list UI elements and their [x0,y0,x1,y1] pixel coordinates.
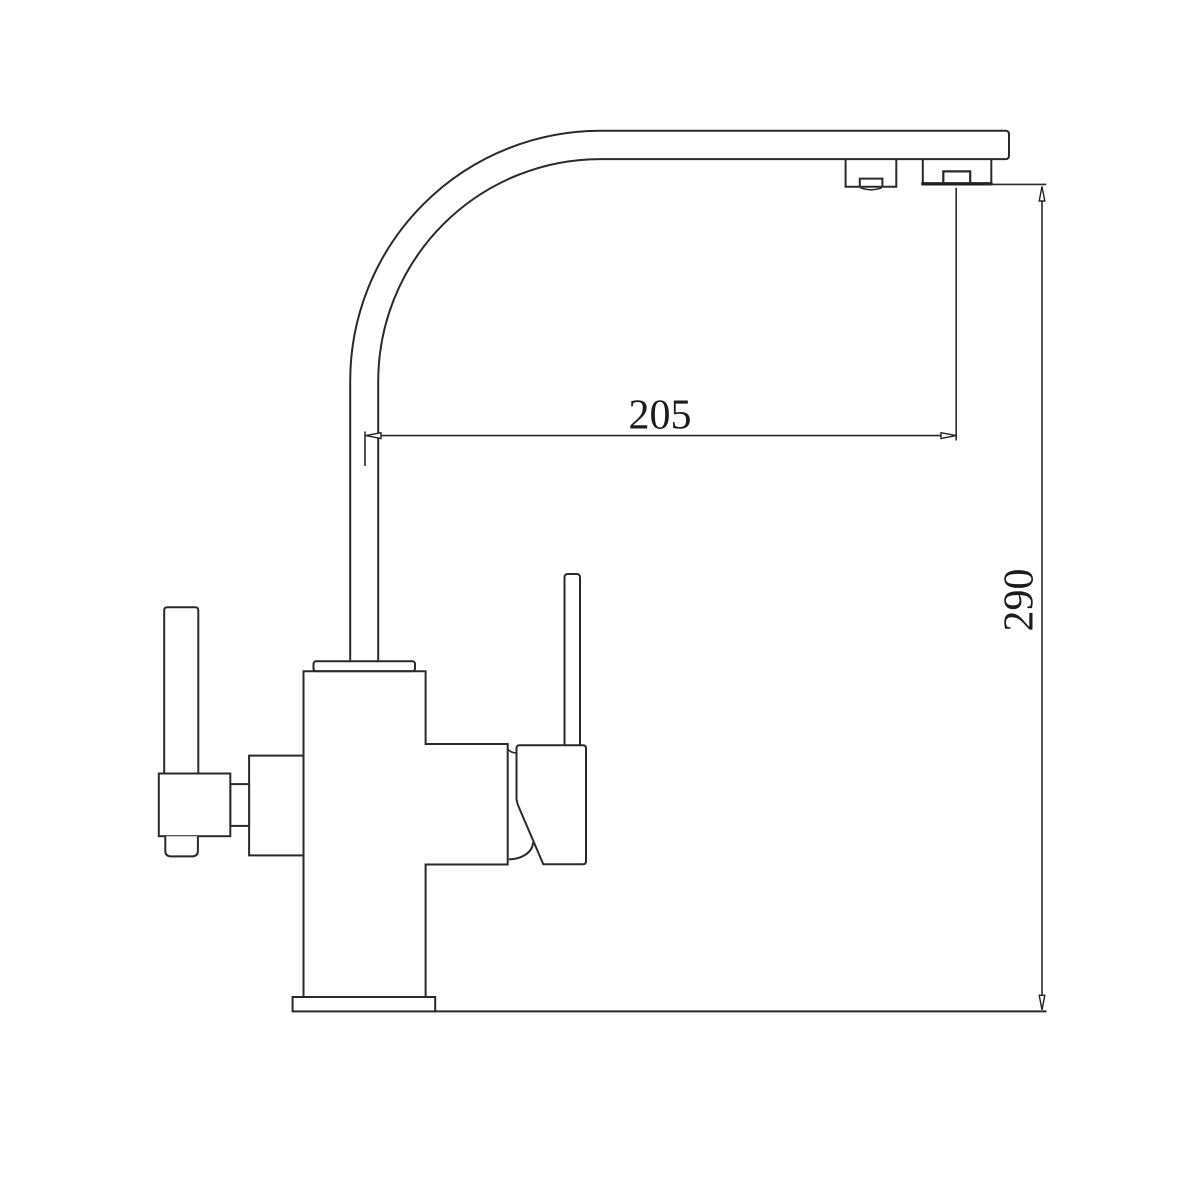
svg-text:205: 205 [629,393,692,439]
svg-text:290: 290 [997,569,1043,632]
